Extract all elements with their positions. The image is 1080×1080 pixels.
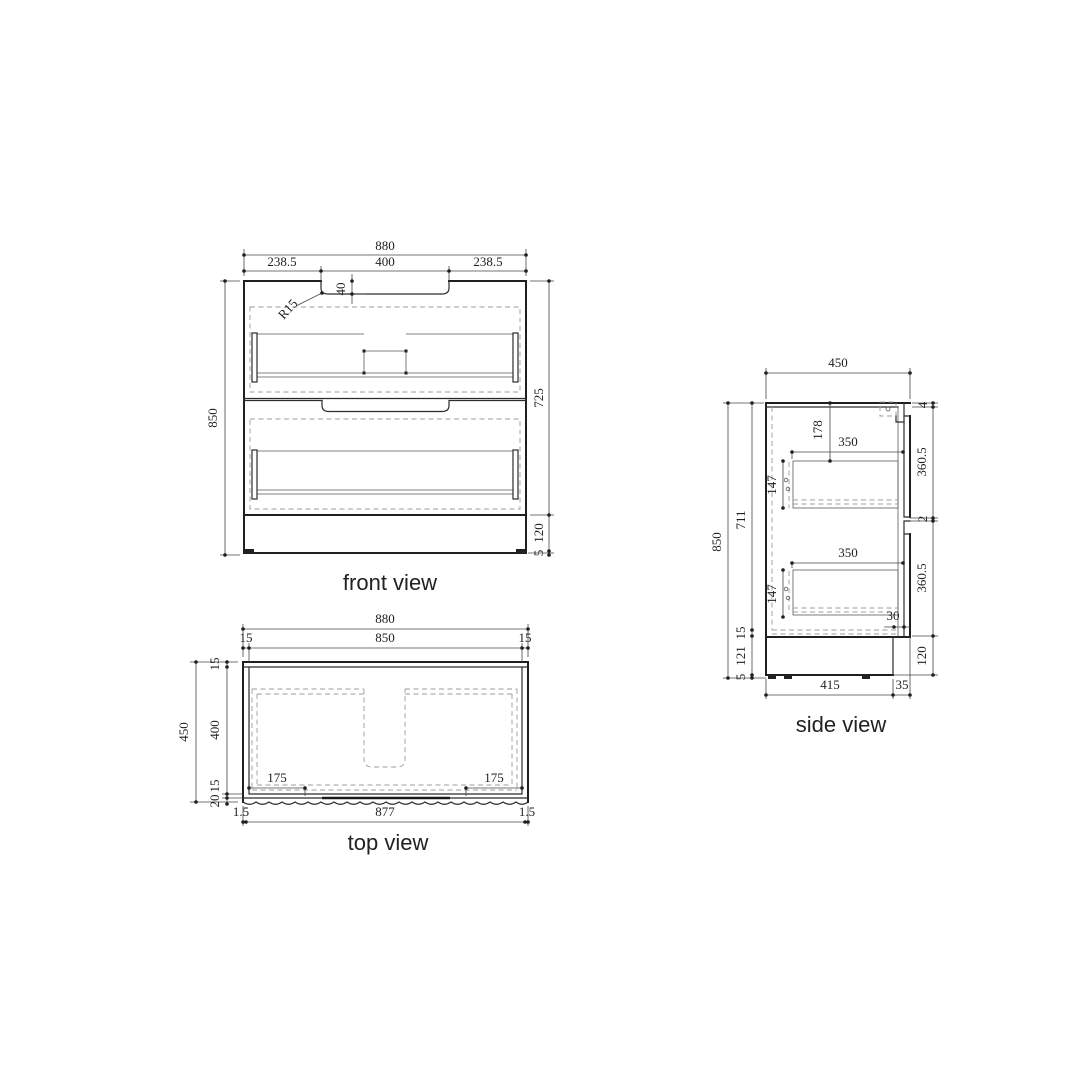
side-dim-interior-height: 711 <box>733 510 748 529</box>
side-dim-bottom-thickness: 15 <box>733 627 748 640</box>
side-dim-plinth-depth: 415 <box>820 677 840 692</box>
foot <box>784 675 792 679</box>
side-dim-front-overhang: 30 <box>887 608 900 623</box>
side-dim-overall-depth: 450 <box>828 355 848 370</box>
top-dim-overall-width: 880 <box>375 611 395 626</box>
top-dim-inner-depth: 400 <box>207 720 222 740</box>
side-dim-overall-height: 850 <box>709 532 724 552</box>
top-view-label: top view <box>348 830 429 855</box>
side-dim-plinth-height: 120 <box>914 646 929 666</box>
top-dim-edge-left: 1.5 <box>233 804 249 819</box>
top-dim-groove-depth: 20 <box>207 795 222 808</box>
front-dim-plinth-height: 120 <box>531 523 546 543</box>
front-dim-recess-depth: 40 <box>333 283 348 296</box>
side-dim-lower-drawer-height: 147 <box>764 584 779 604</box>
side-dim-upper-drawer-height: 147 <box>764 475 779 495</box>
top-dim-recess-offset-left: 175 <box>267 770 287 785</box>
foot <box>862 675 870 679</box>
side-dim-front-offset: 35 <box>896 677 909 692</box>
top-dim-recess-offset-right: 175 <box>484 770 504 785</box>
side-dim-upper-front-height: 360.5 <box>914 447 929 476</box>
front-dim-overall-height: 850 <box>205 408 220 428</box>
side-dim-top-to-drawer: 178 <box>810 420 825 440</box>
top-dim-front-panel: 15 <box>207 780 222 793</box>
side-dim-upper-drawer-depth: 350 <box>838 434 858 449</box>
side-dim-lower-drawer-depth: 350 <box>838 545 858 560</box>
side-dim-gap: 2 <box>915 516 930 523</box>
front-dim-overall-width: 880 <box>375 238 395 253</box>
side-dim-lower-front-height: 360.5 <box>914 563 929 592</box>
foot-left <box>245 549 254 553</box>
top-dim-overall-depth: 450 <box>176 722 191 742</box>
foot-right <box>516 549 525 553</box>
side-dim-plinth-inner: 121 <box>733 646 748 666</box>
front-dim-recess-width: 400 <box>375 254 395 269</box>
side-view-label: side view <box>796 712 887 737</box>
top-dim-inner-width: 850 <box>375 630 395 645</box>
front-dim-right-offset: 238.5 <box>473 254 502 269</box>
side-dim-foot-height: 5 <box>733 674 748 681</box>
top-dim-back-wall: 15 <box>207 658 222 671</box>
front-dim-left-offset: 238.5 <box>267 254 296 269</box>
top-dim-edge-right: 1.5 <box>519 804 535 819</box>
front-dim-foot-height: 5 <box>531 550 546 557</box>
front-dim-body-height: 725 <box>531 388 546 408</box>
top-dim-wall-right: 15 <box>519 630 532 645</box>
front-view-label: front view <box>343 570 437 595</box>
technical-drawing-canvas: 880 238.5 400 238.5 40 R15 850 725 120 5… <box>0 0 1080 1080</box>
foot <box>768 675 776 679</box>
top-dim-wall-left: 15 <box>240 630 253 645</box>
side-dim-top-thickness: 4 <box>915 401 930 408</box>
top-dim-front-width: 877 <box>375 804 395 819</box>
